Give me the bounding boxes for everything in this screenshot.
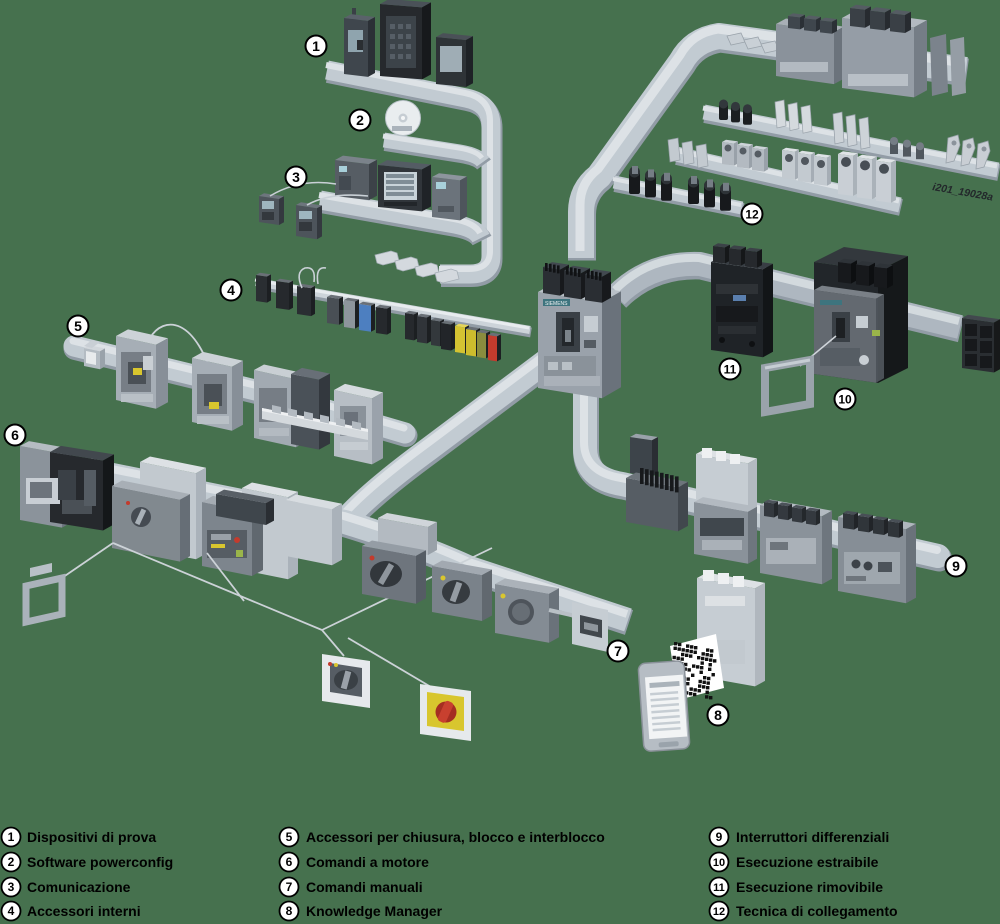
svg-text:12: 12 [745,207,759,221]
svg-text:Dispositivi di prova: Dispositivi di prova [27,829,156,845]
svg-text:Esecuzione rimovibile: Esecuzione rimovibile [736,879,883,895]
svg-text:Comandi a motore: Comandi a motore [306,854,429,870]
svg-text:3: 3 [8,880,15,894]
svg-text:9: 9 [716,830,723,844]
svg-text:Accessori per chiusura, blocco: Accessori per chiusura, blocco e interbl… [306,829,605,845]
svg-text:9: 9 [952,558,960,574]
svg-text:1: 1 [312,38,320,54]
svg-text:8: 8 [286,904,293,918]
svg-text:Accessori interni: Accessori interni [27,903,141,919]
svg-text:Interruttori differenziali: Interruttori differenziali [736,829,889,845]
svg-text:6: 6 [11,427,19,443]
svg-text:SIEMENS: SIEMENS [545,301,568,307]
svg-text:Knowledge Manager: Knowledge Manager [306,903,443,919]
svg-text:Comandi manuali: Comandi manuali [306,879,423,895]
svg-text:12: 12 [713,906,725,918]
svg-text:7: 7 [286,880,293,894]
svg-text:7: 7 [614,643,622,659]
svg-text:2: 2 [356,112,364,128]
svg-text:8: 8 [714,707,722,723]
svg-text:10: 10 [838,392,852,406]
svg-text:4: 4 [8,904,15,918]
svg-text:10: 10 [713,857,725,869]
svg-text:Software powerconfig: Software powerconfig [27,854,173,870]
svg-text:1: 1 [8,830,15,844]
svg-text:Tecnica di collegamento: Tecnica di collegamento [736,903,898,919]
svg-text:Esecuzione estraibile: Esecuzione estraibile [736,854,879,870]
svg-text:3: 3 [292,169,300,185]
svg-text:5: 5 [74,318,82,334]
svg-text:11: 11 [713,882,725,894]
svg-text:4: 4 [227,282,235,298]
svg-text:6: 6 [286,855,293,869]
svg-text:5: 5 [286,830,293,844]
svg-text:2: 2 [8,855,15,869]
svg-text:11: 11 [724,362,737,376]
svg-text:Comunicazione: Comunicazione [27,879,131,895]
